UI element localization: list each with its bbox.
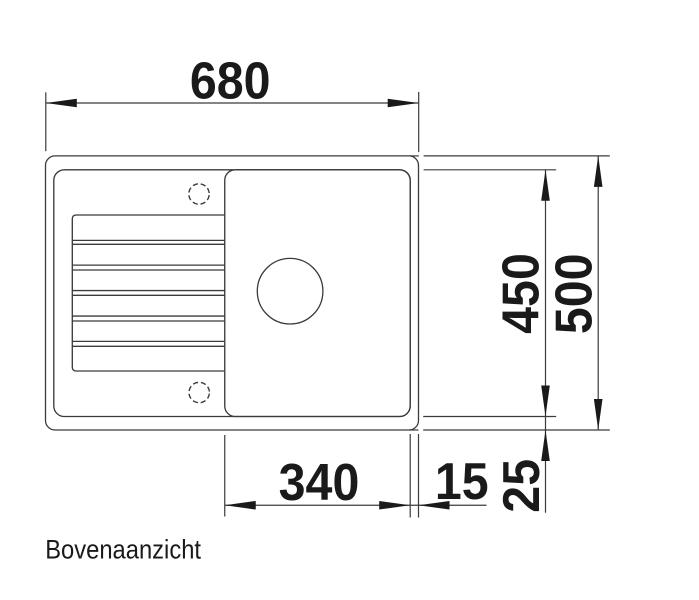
- svg-text:500: 500: [545, 253, 603, 334]
- svg-text:25: 25: [493, 459, 551, 513]
- svg-text:680: 680: [190, 52, 271, 110]
- svg-text:450: 450: [492, 253, 550, 334]
- svg-text:15: 15: [435, 452, 489, 510]
- svg-text:Bovenaanzicht: Bovenaanzicht: [45, 535, 201, 565]
- svg-text:340: 340: [279, 453, 360, 511]
